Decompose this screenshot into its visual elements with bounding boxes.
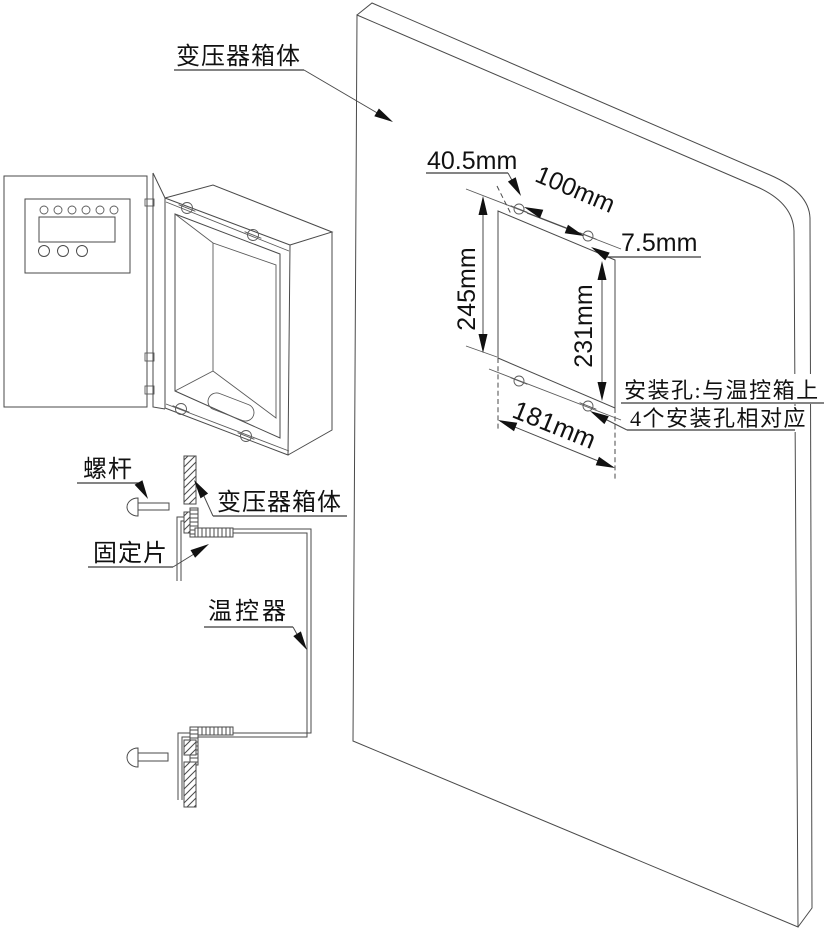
mounting-hole-top-left	[511, 204, 528, 214]
dim-100-text: 100mm	[531, 160, 619, 218]
label-fixing-piece-text: 固定片	[93, 540, 168, 567]
frame-screw-line-bottom	[166, 404, 289, 451]
label-fixing-piece-arrow	[191, 544, 210, 558]
section-view: 螺杆 变压器箱体 固定片 温控器	[77, 456, 347, 807]
panel-side-faces	[357, 3, 812, 927]
dim-231-text: 231mm	[570, 284, 598, 367]
note-text-line2: 4个安装孔相对应	[630, 406, 807, 431]
dimension-40-5mm: 40.5mm	[426, 147, 521, 196]
label-wall-section: 变压器箱体	[194, 480, 347, 516]
led-indicator	[68, 206, 76, 214]
dimension-231mm: 231mm	[570, 261, 607, 401]
mounting-frame-3d	[153, 173, 332, 455]
label-wall-text: 变压器箱体	[217, 489, 342, 516]
dim-7-5-arrow	[591, 247, 610, 260]
led-indicator	[82, 206, 90, 214]
label-wall-leader	[203, 494, 213, 516]
panel-button	[77, 246, 88, 257]
dim-231-arrow-top	[598, 261, 607, 280]
panel-buttons	[39, 246, 88, 257]
display-bezel	[25, 199, 130, 273]
dim-245-arrow-bottom	[479, 334, 488, 353]
panel-button	[39, 246, 50, 257]
label-screw: 螺杆	[77, 456, 148, 499]
installation-diagram: 变压器箱体 40.5mm	[0, 0, 826, 934]
screw-top	[127, 498, 169, 516]
wall-section-hatch	[184, 740, 196, 755]
dimension-100mm: 100mm	[524, 160, 619, 236]
dim-245-ext-bottom	[466, 346, 497, 357]
led-indicator	[54, 206, 62, 214]
frame-top-face	[165, 185, 332, 245]
note-text-line1: 安装孔:与温控箱上	[624, 378, 820, 403]
section-bottom-joint	[127, 727, 233, 807]
fixing-piece-bar	[195, 727, 233, 735]
dim-40-5-text: 40.5mm	[427, 147, 517, 175]
dim-245-text: 245mm	[453, 247, 481, 330]
panel-top-label: 变压器箱体	[174, 43, 393, 122]
label-fixing-piece-leader	[173, 554, 194, 567]
dim-7-5-text: 7.5mm	[621, 229, 697, 257]
frame-interior	[175, 214, 276, 418]
label-thermostat: 温控器	[204, 598, 307, 650]
panel-top-label-leader	[304, 70, 379, 114]
panel-front-face	[353, 15, 798, 927]
dim-100-arrow-right	[565, 225, 584, 236]
dim-231-arrow-bottom	[598, 382, 607, 401]
fixing-piece-bar	[195, 528, 233, 537]
transformer-panel	[353, 3, 812, 927]
dim-245-arrow-top	[479, 196, 488, 215]
frame-oval-slot	[206, 390, 257, 423]
led-indicator	[40, 206, 48, 214]
wall-section-hatch	[184, 762, 196, 807]
panel-button	[58, 246, 69, 257]
thermostat-bracket-inner	[182, 533, 307, 800]
label-thermostat-arrow	[293, 631, 307, 650]
label-thermostat-text: 温控器	[208, 598, 289, 625]
mounting-hole-top-right	[580, 231, 597, 241]
label-screw-text: 螺杆	[83, 456, 133, 483]
dim-40-5-arrow	[508, 177, 521, 196]
display-window	[39, 217, 115, 242]
dimension-7-5mm: 7.5mm	[591, 229, 701, 260]
dimension-245mm: 245mm	[453, 196, 497, 357]
dimension-181mm: 181mm	[498, 395, 615, 468]
hole1-extension-dashed	[497, 186, 511, 214]
led-indicators	[40, 206, 118, 214]
mounting-hole-bottom-left	[511, 376, 528, 386]
dim-181-arrow-right	[596, 457, 615, 468]
panel-top-label-arrow	[374, 109, 393, 123]
label-fixing-piece: 固定片	[88, 540, 209, 567]
wall-section-hatch	[184, 456, 196, 504]
led-indicator	[96, 206, 104, 214]
thermostat-front-view	[4, 176, 154, 407]
frame-right-face	[288, 232, 332, 455]
led-indicator	[110, 206, 118, 214]
frame-front-face	[165, 198, 290, 455]
frame-screw-line-top	[166, 202, 289, 251]
frame-left-side	[153, 173, 165, 409]
note-arrow	[590, 411, 609, 424]
frame-screw	[173, 404, 190, 415]
mounting-note: 安装孔:与温控箱上 4个安装孔相对应	[590, 374, 826, 432]
dim-181-text: 181mm	[509, 395, 601, 455]
panel-top-label-text: 变压器箱体	[176, 43, 301, 70]
screw-bottom	[127, 748, 168, 767]
